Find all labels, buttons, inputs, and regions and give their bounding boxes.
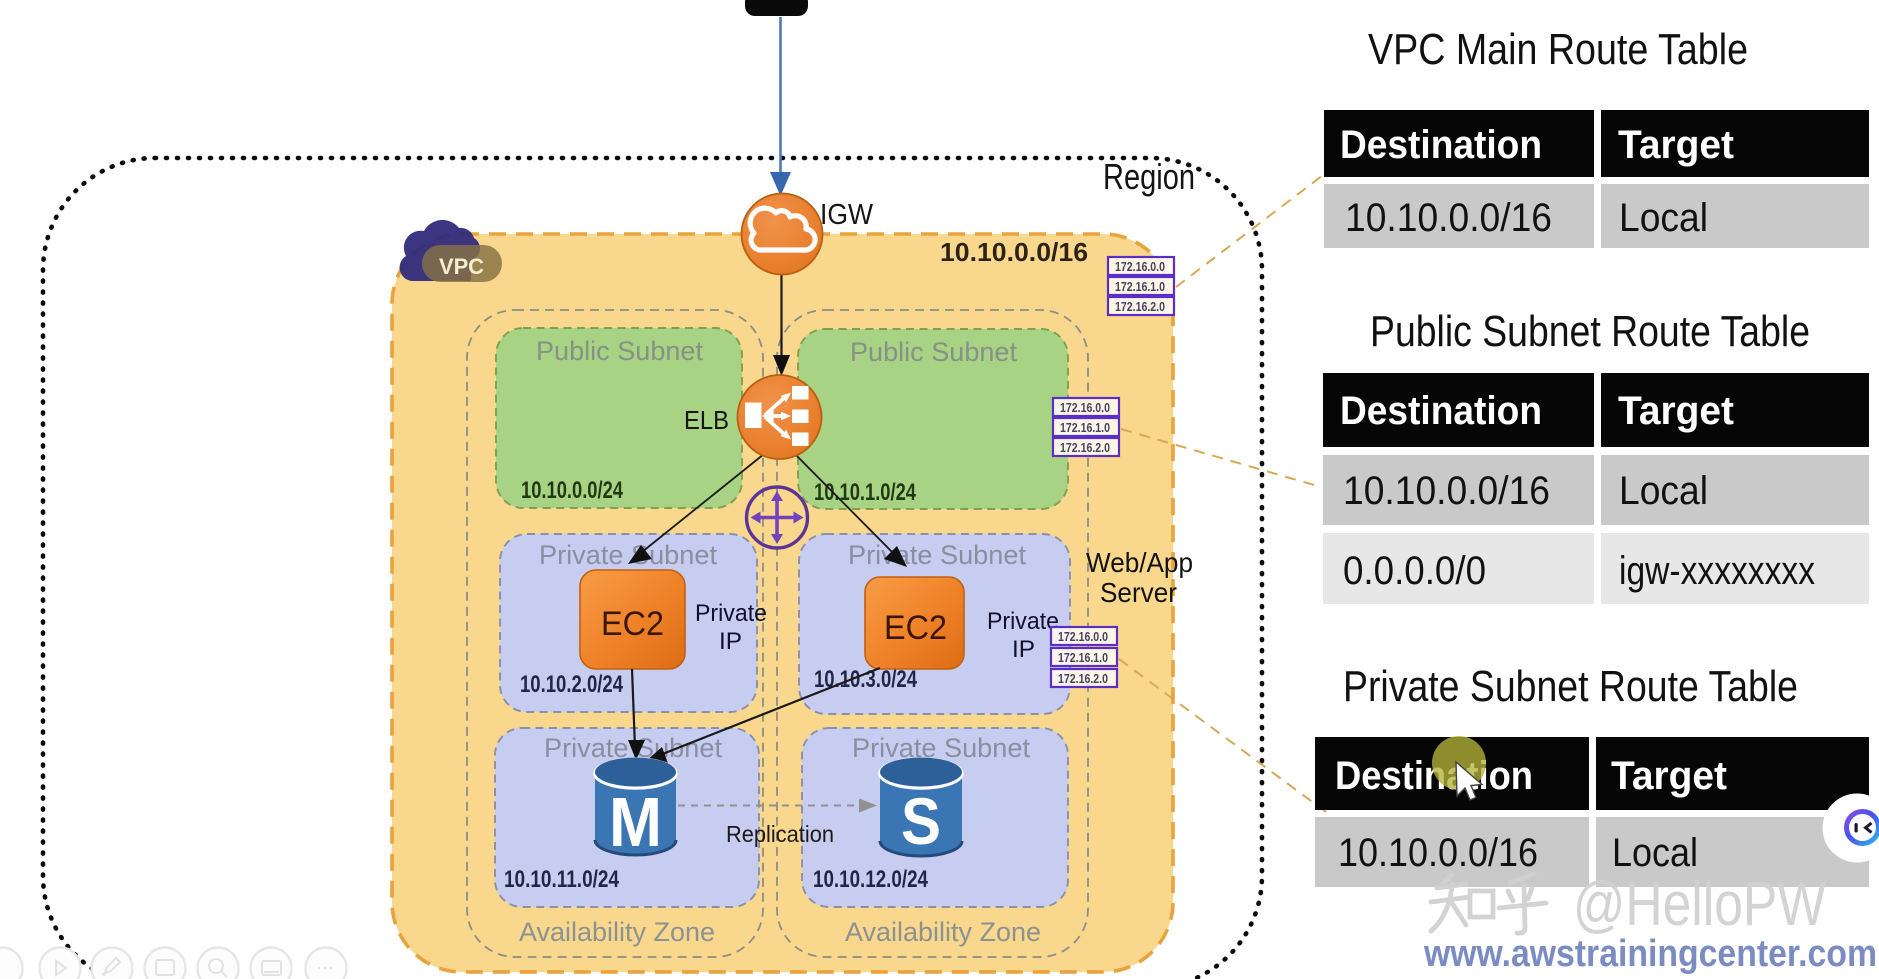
svg-text:10.10.11.0/24: 10.10.11.0/24 — [504, 866, 620, 893]
svg-text:10.10.12.0/24: 10.10.12.0/24 — [813, 866, 929, 893]
svg-text:10.10.0.0/16: 10.10.0.0/16 — [1345, 196, 1552, 240]
svg-text:10.10.0.0/16: 10.10.0.0/16 — [1343, 469, 1550, 513]
svg-text:VPC: VPC — [439, 254, 484, 279]
svg-text:IGW: IGW — [820, 199, 874, 231]
svg-text:EC2: EC2 — [884, 609, 947, 647]
svg-text:172.16.1.0: 172.16.1.0 — [1058, 650, 1108, 665]
svg-text:Private Subnet: Private Subnet — [539, 540, 718, 570]
svg-text:Private: Private — [695, 600, 767, 627]
svg-text:172.16.0.0: 172.16.0.0 — [1058, 629, 1108, 644]
svg-text:Public Subnet: Public Subnet — [536, 336, 703, 366]
svg-text:172.16.1.0: 172.16.1.0 — [1115, 279, 1165, 294]
svg-text:Server: Server — [1100, 577, 1177, 608]
svg-text:172.16.0.0: 172.16.0.0 — [1060, 400, 1110, 415]
svg-text:IP: IP — [1012, 636, 1035, 663]
svg-text:EC2: EC2 — [601, 605, 664, 643]
svg-text:Availability Zone: Availability Zone — [519, 917, 715, 947]
svg-text:172.16.2.0: 172.16.2.0 — [1060, 440, 1110, 455]
svg-text:igw-xxxxxxxx: igw-xxxxxxxx — [1619, 549, 1815, 593]
svg-text:10.10.2.0/24: 10.10.2.0/24 — [520, 671, 624, 698]
svg-text:Destination: Destination — [1340, 389, 1542, 433]
svg-text:Public Subnet: Public Subnet — [850, 337, 1017, 367]
svg-text:Replication: Replication — [726, 821, 834, 847]
svg-text:Target: Target — [1618, 123, 1734, 167]
svg-text:10.10.0.0/16: 10.10.0.0/16 — [940, 237, 1088, 267]
svg-text:S: S — [901, 784, 941, 858]
svg-text:Local: Local — [1612, 831, 1698, 875]
svg-text:Target: Target — [1618, 389, 1734, 433]
svg-text:Private Subnet: Private Subnet — [852, 733, 1031, 763]
svg-text:VPC Main Route Table: VPC Main Route Table — [1368, 25, 1748, 74]
svg-text:IP: IP — [719, 628, 742, 655]
svg-text:10.10.1.0/24: 10.10.1.0/24 — [814, 479, 916, 506]
svg-text:Local: Local — [1619, 196, 1708, 240]
svg-text:Private: Private — [987, 608, 1059, 635]
svg-text:M: M — [609, 783, 662, 861]
svg-text:Availability Zone: Availability Zone — [845, 917, 1041, 947]
svg-text:Region: Region — [1103, 156, 1195, 197]
svg-text:Target: Target — [1611, 754, 1727, 798]
svg-text:www.awstrainingcenter.com: www.awstrainingcenter.com — [1423, 933, 1877, 975]
svg-text:0.0.0.0/0: 0.0.0.0/0 — [1343, 549, 1486, 593]
svg-text:Public Subnet Route Table: Public Subnet Route Table — [1370, 307, 1810, 356]
svg-text:172.16.2.0: 172.16.2.0 — [1115, 299, 1165, 314]
svg-text:172.16.2.0: 172.16.2.0 — [1058, 671, 1108, 686]
svg-text:10.10.0.0/24: 10.10.0.0/24 — [521, 477, 623, 504]
svg-text:Destination: Destination — [1340, 123, 1542, 167]
svg-text:@HelloPW: @HelloPW — [1573, 870, 1826, 939]
svg-text:Private Subnet: Private Subnet — [848, 540, 1027, 570]
svg-text:Private Subnet Route Table: Private Subnet Route Table — [1343, 662, 1798, 711]
svg-text:172.16.1.0: 172.16.1.0 — [1060, 420, 1110, 435]
svg-text:Web/App: Web/App — [1086, 547, 1193, 578]
svg-text:172.16.0.0: 172.16.0.0 — [1115, 259, 1165, 274]
svg-text:10.10.0.0/16: 10.10.0.0/16 — [1338, 831, 1538, 875]
svg-text:Local: Local — [1619, 469, 1708, 513]
svg-text:ELB: ELB — [684, 405, 729, 435]
